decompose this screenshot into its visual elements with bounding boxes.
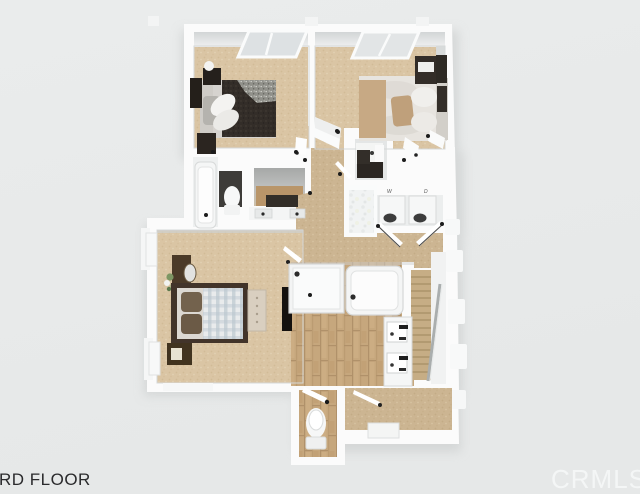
svg-text:D: D bbox=[424, 189, 428, 195]
svg-text:RD FLOOR: RD FLOOR bbox=[0, 470, 91, 489]
svg-text:CRMLS: CRMLS bbox=[551, 464, 640, 494]
